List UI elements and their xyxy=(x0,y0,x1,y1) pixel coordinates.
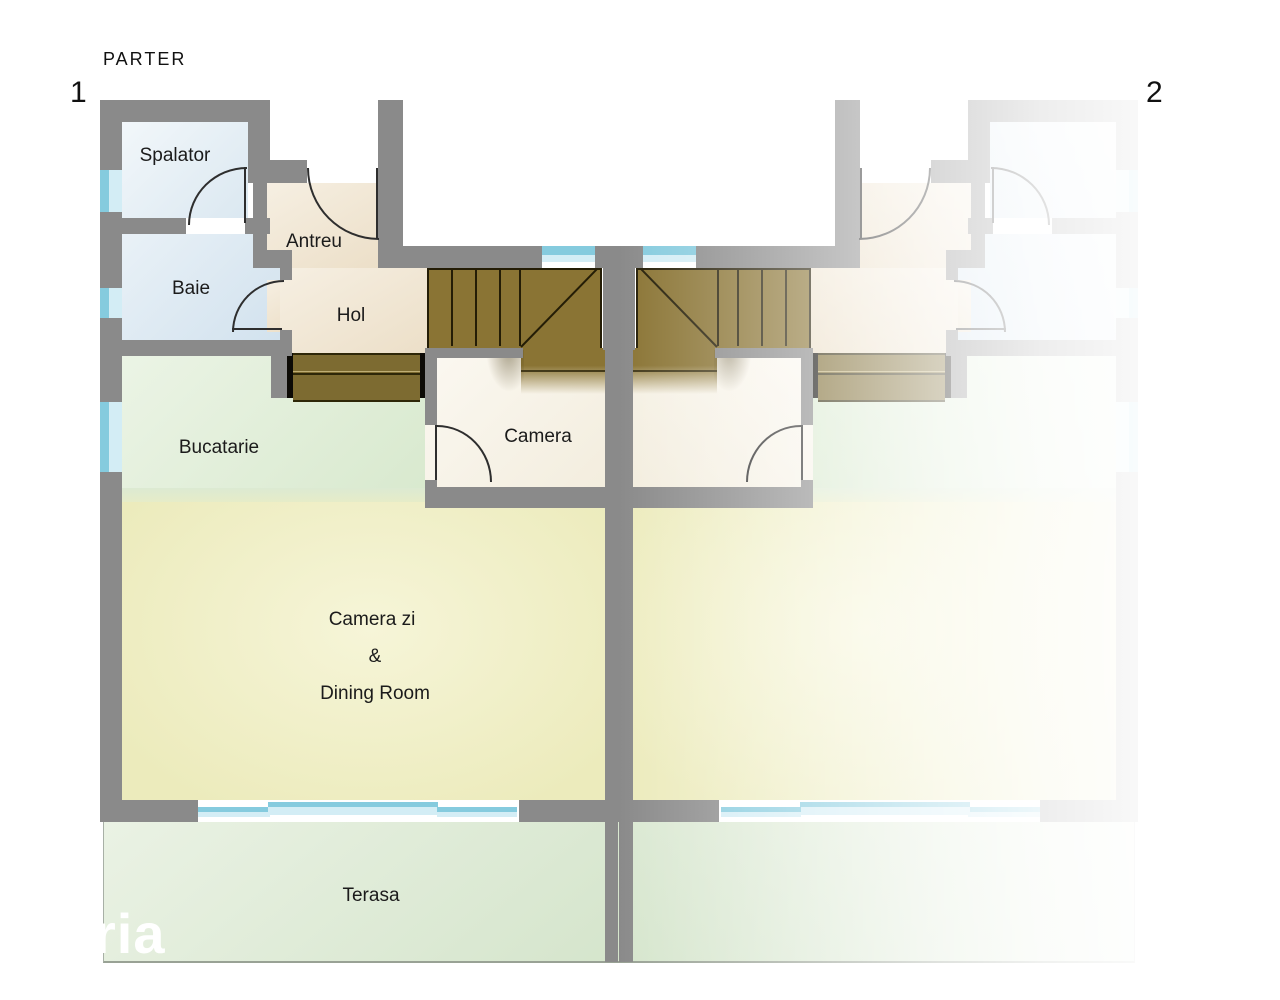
stair-lower-flight-fade xyxy=(633,348,717,394)
window-sill xyxy=(643,262,696,268)
wall xyxy=(968,100,1138,122)
room-area-living xyxy=(619,502,1116,802)
room-area-hol xyxy=(811,268,958,354)
window xyxy=(1116,402,1129,472)
terrace-divider-wall xyxy=(619,822,633,962)
sliding-door-window xyxy=(800,807,970,815)
window xyxy=(1129,402,1138,472)
window xyxy=(1129,170,1138,212)
window xyxy=(1116,170,1129,212)
window xyxy=(1129,288,1138,318)
room-label-hol: Hol xyxy=(337,305,366,327)
window xyxy=(721,812,801,817)
wall xyxy=(635,246,643,268)
window xyxy=(968,812,1040,817)
party-wall xyxy=(619,246,635,350)
room-label-living-line1: Camera zi xyxy=(329,609,416,631)
window xyxy=(643,255,696,262)
unit-2-label: 2 xyxy=(1146,76,1163,110)
room-label-spalator: Spalator xyxy=(140,145,211,167)
stair-tread-line xyxy=(761,270,763,346)
plan-title: PARTER xyxy=(103,49,186,70)
room-label-antreu: Antreu xyxy=(286,231,342,253)
stair-tread-line xyxy=(785,270,787,346)
stair-tread-line xyxy=(737,270,739,346)
room-label-camera: Camera xyxy=(504,426,572,448)
watermark-text: ria xyxy=(94,906,166,962)
room-label-living-line2: & xyxy=(369,646,382,668)
unit-1-label: 1 xyxy=(70,76,87,110)
room-label-terasa: Terasa xyxy=(342,885,399,907)
door-leaf xyxy=(992,167,994,223)
floor-plan-canvas: PARTER 1 2 Spalator Antreu Baie Hol Buca… xyxy=(0,0,1280,1000)
cabinet-shelf-line xyxy=(818,373,945,375)
wall xyxy=(619,487,813,508)
stair-lower-step-line xyxy=(633,370,717,372)
room-label-bucatarie: Bucatarie xyxy=(179,437,259,459)
wall xyxy=(619,800,721,822)
door-leaf xyxy=(860,168,862,238)
room-label-baie: Baie xyxy=(172,278,210,300)
wall xyxy=(946,250,985,268)
wall xyxy=(1038,800,1138,822)
wall xyxy=(696,246,858,268)
wall xyxy=(951,352,967,398)
stair-tread-line xyxy=(717,270,719,346)
wall xyxy=(715,348,811,358)
wall xyxy=(946,268,958,280)
party-wall xyxy=(619,350,633,822)
window xyxy=(1116,288,1129,318)
wall xyxy=(801,348,813,425)
window xyxy=(643,246,696,255)
hallway-cabinet xyxy=(818,353,945,402)
wall xyxy=(958,340,1138,356)
room-area-terasa xyxy=(618,822,1135,963)
door-leaf xyxy=(956,328,1006,330)
cabinet-shelf-line xyxy=(818,371,945,372)
wall xyxy=(931,160,990,183)
wall xyxy=(835,100,860,268)
wall xyxy=(1052,218,1138,234)
room-label-living-line3: Dining Room xyxy=(320,683,430,705)
door-leaf xyxy=(801,425,803,480)
wall xyxy=(971,183,985,250)
